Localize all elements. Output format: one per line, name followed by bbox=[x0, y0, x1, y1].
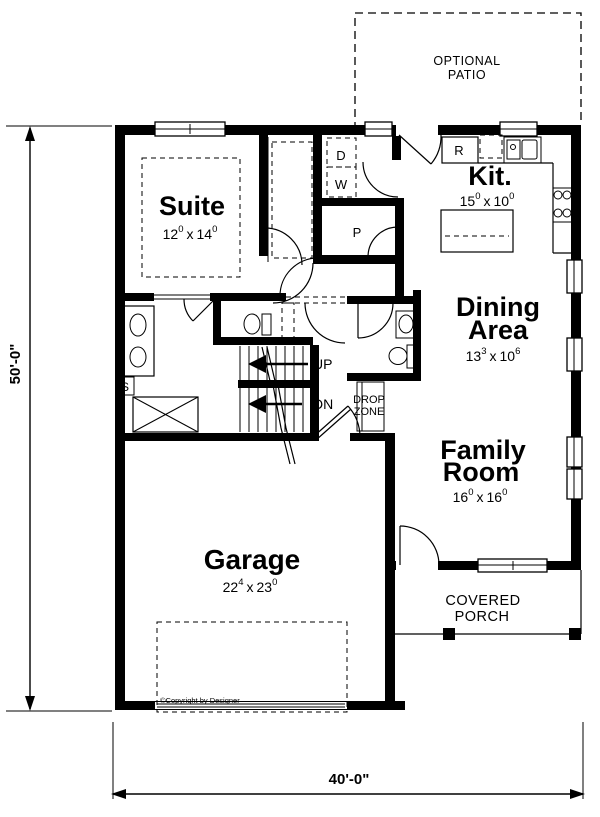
suite-label: Suite bbox=[159, 191, 225, 221]
patio-label-line1: OPTIONAL bbox=[433, 54, 500, 68]
kitchen-island bbox=[441, 210, 513, 252]
dining-label-line2: Area bbox=[468, 315, 529, 345]
laundry-door bbox=[363, 162, 398, 197]
garage-label: Garage bbox=[204, 544, 301, 575]
pantry-label: P bbox=[353, 225, 362, 240]
suite-vanity bbox=[124, 306, 154, 376]
kitchen-sink bbox=[504, 137, 541, 163]
porch-label-line2: PORCH bbox=[455, 609, 510, 625]
up-label: UP bbox=[313, 356, 332, 372]
front-door bbox=[400, 526, 439, 565]
dining-dim: 133x106 bbox=[466, 346, 521, 364]
kitchen-label: Kit. bbox=[468, 161, 512, 191]
tub bbox=[133, 397, 198, 432]
height-dimension: 50'-0" bbox=[6, 126, 112, 711]
closet-shelves bbox=[272, 142, 312, 258]
laundry-window bbox=[365, 122, 392, 136]
patio-label-line2: PATIO bbox=[448, 68, 486, 82]
family-label-line2: Room bbox=[443, 457, 520, 487]
family-dim: 160x160 bbox=[453, 487, 508, 505]
floor-plan: OPTIONAL PATIO bbox=[0, 0, 600, 817]
porch-post-left bbox=[443, 628, 455, 640]
drop-zone-label-line1: DROP bbox=[353, 394, 385, 406]
kitchen-window bbox=[500, 122, 537, 136]
width-dimension: 40'-0" bbox=[111, 722, 585, 799]
suite-toilet bbox=[244, 314, 271, 335]
dining-hall-door bbox=[280, 258, 318, 296]
dryer-label: D bbox=[336, 148, 345, 163]
dishwasher bbox=[480, 135, 502, 158]
washer-label: W bbox=[335, 177, 348, 192]
range-cooktop bbox=[553, 188, 571, 222]
down-label: DN bbox=[313, 396, 333, 412]
powder-door bbox=[358, 303, 393, 338]
patio-door bbox=[399, 135, 441, 164]
family-window-front bbox=[478, 559, 547, 572]
optional-patio: OPTIONAL PATIO bbox=[355, 13, 581, 130]
drop-zone-label-line2: ZONE bbox=[354, 406, 385, 418]
dining-window-upper bbox=[567, 260, 582, 293]
copyright-text: ©Copyright by Designer bbox=[160, 696, 240, 705]
dining-window-lower bbox=[567, 338, 582, 371]
porch-label-line1: COVERED bbox=[445, 593, 520, 609]
stair-treads-lower bbox=[240, 388, 303, 432]
stairs bbox=[240, 346, 308, 464]
powder-toilet bbox=[389, 345, 416, 368]
room-labels: Suite 120x140 Kit. 150x100 Dining Area 1… bbox=[159, 161, 540, 625]
shower-label: S bbox=[121, 380, 129, 394]
range-label: R bbox=[454, 143, 463, 158]
porch-post-right bbox=[569, 628, 581, 640]
floor-plan-drawing: OPTIONAL PATIO bbox=[0, 0, 600, 817]
height-dimension-text: 50'-0" bbox=[7, 344, 24, 385]
garage-dim: 224x230 bbox=[223, 577, 278, 595]
up-arrow bbox=[248, 355, 308, 373]
pantry-door bbox=[368, 227, 398, 257]
kitchen-dim: 150x100 bbox=[460, 191, 515, 209]
width-dimension-text: 40'-0" bbox=[329, 771, 370, 788]
hall-closet-rod bbox=[282, 303, 294, 341]
suite-dim: 120x140 bbox=[163, 224, 218, 242]
suite-closet-door bbox=[265, 228, 302, 265]
suite-bath-door bbox=[154, 295, 215, 321]
suite-window bbox=[155, 122, 225, 136]
